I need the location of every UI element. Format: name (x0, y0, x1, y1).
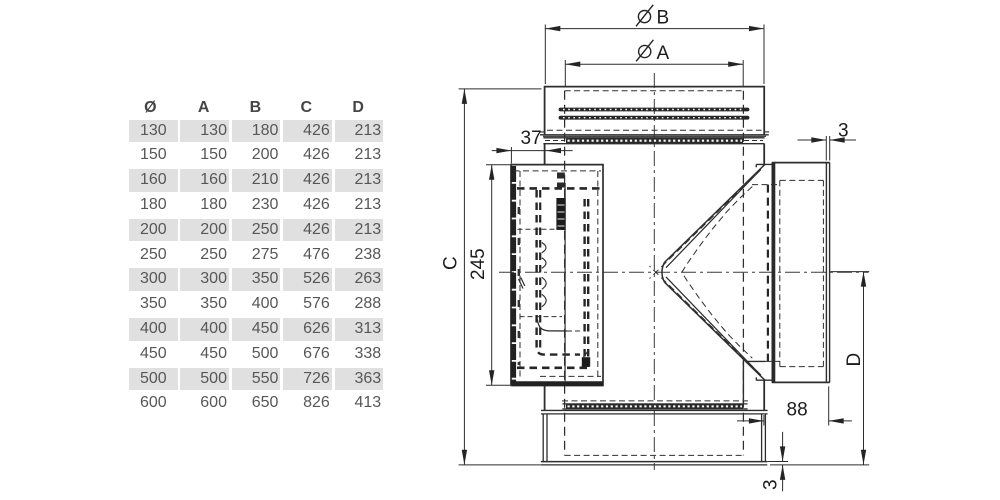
svg-text:245: 245 (468, 248, 489, 280)
svg-text:37: 37 (521, 128, 542, 149)
svg-text:3: 3 (761, 479, 782, 490)
svg-text:88: 88 (787, 399, 808, 420)
svg-text:A: A (657, 43, 670, 64)
svg-text:D: D (844, 353, 865, 367)
svg-text:3: 3 (838, 121, 849, 142)
svg-text:B: B (657, 8, 670, 29)
svg-text:C: C (441, 256, 462, 270)
